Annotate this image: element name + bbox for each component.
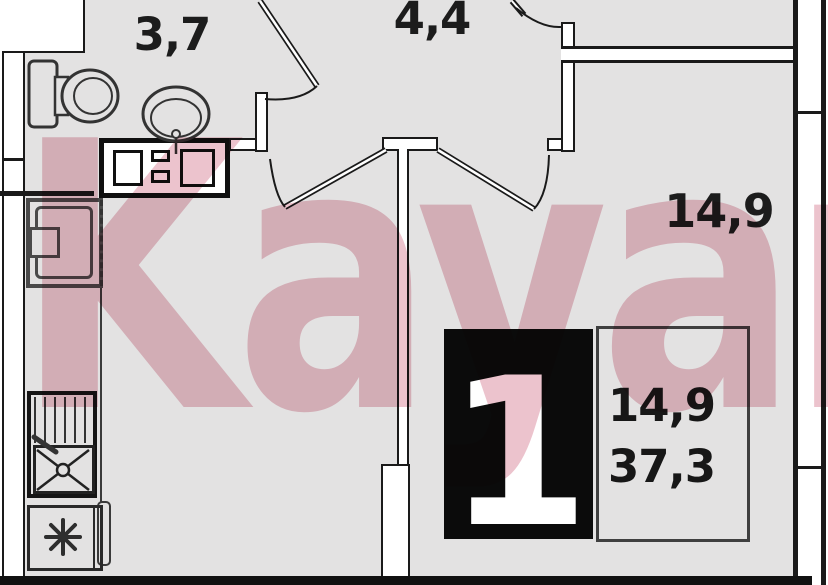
floorplan: 3,7 4,4 14,9 1 14,9 37,3 Kayan — [0, 0, 828, 585]
hallway-area-label: 4,4 — [386, 0, 478, 41]
living-area-value: 14,9 — [608, 375, 747, 436]
room-count-value: 1 — [447, 347, 590, 562]
kitchen-door-swing — [270, 150, 386, 207]
sink-cross-icon — [34, 437, 89, 490]
bathroom-door-swing — [260, 1, 317, 99]
entry-door-swing — [512, 1, 561, 27]
washbasin-icon — [143, 87, 209, 154]
toilet-icon — [29, 61, 118, 127]
livingroom-area-label: 14,9 — [658, 188, 780, 234]
livingroom-door-swing — [438, 150, 549, 209]
area-info-box: 14,9 37,3 — [596, 326, 750, 542]
bathroom-area-label: 3,7 — [122, 12, 222, 57]
room-count-badge: 1 — [444, 329, 593, 539]
total-area-value: 37,3 — [608, 436, 747, 497]
